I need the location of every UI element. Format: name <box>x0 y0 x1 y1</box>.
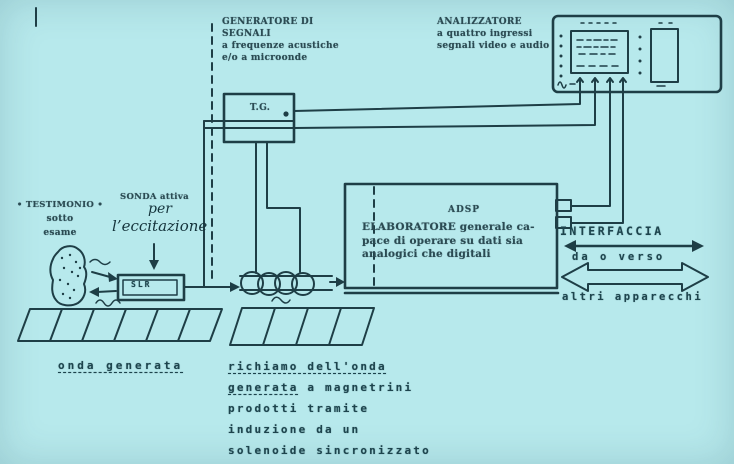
specimen-label: • TESTIMONIO • sotto esame <box>12 198 108 240</box>
interface-bottom-text: altri apparecchi <box>562 291 703 303</box>
probe-label-handwritten-2: l’eccitazione <box>112 217 207 235</box>
caption-right-line2-rest: a magnetrini <box>299 381 414 394</box>
specimen-label-line1: • TESTIMONIO • <box>12 198 108 212</box>
slr-box-label: SLR <box>131 280 151 289</box>
analyzer-label-line3: segnali video e audio <box>437 40 567 52</box>
arrowhead-into-adsp <box>336 277 345 287</box>
caption-right-line2: generata a magnetrini <box>228 377 431 398</box>
generator-label-line1: GENERATORE DI SEGNALI <box>222 16 362 40</box>
solenoid-coil-drawing <box>184 272 345 295</box>
caption-right-line2-underlined: generata <box>228 381 299 394</box>
generator-label-line2: a frequenze acustiche <box>222 40 362 52</box>
generator-feed-lines <box>204 24 212 287</box>
generator-label-line3: e/o a microonde <box>222 52 362 64</box>
tg-to-coil-wires <box>256 142 300 273</box>
analyzer-device-drawing <box>553 16 721 92</box>
caption-right-line3: prodotti tramite <box>228 398 431 419</box>
specimen-label-line3: esame <box>12 226 108 240</box>
caption-right-line1: richiamo dell'onda <box>228 356 431 377</box>
analyzer-label-line2: a quattro ingressi <box>437 28 567 40</box>
specimen-speckles <box>59 254 81 299</box>
probe-down-arrow <box>149 244 159 270</box>
film-strip-right <box>230 297 374 345</box>
tg-box-label: T.G. <box>240 102 280 114</box>
analyzer-to-adsp-wires <box>571 92 623 223</box>
specimen-blob-drawing <box>50 246 118 305</box>
interface-hollow-arrow <box>562 263 708 291</box>
adsp-body-text: ELABORATORE generale ca- pace di operare… <box>362 221 562 262</box>
caption-wave-generated: onda generata <box>58 359 183 372</box>
scanned-diagram-canvas: GENERATORE DI SEGNALI a frequenze acusti… <box>0 0 734 464</box>
caption-right-block: richiamo dell'onda generata a magnetrini… <box>228 356 431 461</box>
generator-label: GENERATORE DI SEGNALI a frequenze acusti… <box>222 16 362 64</box>
adsp-title: ADSP <box>448 204 480 216</box>
arrowhead-blob-to-slr <box>108 272 118 282</box>
arrowhead-into-coil <box>230 282 240 292</box>
film-strip-left <box>18 300 222 341</box>
tg-to-analyzer-wires <box>294 80 595 128</box>
interface-title: INTERFACCIA <box>560 224 664 238</box>
interface-middle-text: da o verso <box>572 251 665 263</box>
analyzer-input-connectors <box>577 78 626 92</box>
analyzer-screen-traces <box>577 40 618 66</box>
arrowhead-slr-to-blob <box>89 287 99 297</box>
analyzer-label-line1: ANALIZZATORE <box>437 16 567 28</box>
analyzer-knob-dots <box>558 23 672 88</box>
probe-label-handwritten-1: per <box>148 201 172 217</box>
analyzer-label: ANALIZZATORE a quattro ingressi segnali … <box>437 16 567 52</box>
caption-right-line4: induzione da un <box>228 419 431 440</box>
caption-right-line5: solenoide sincronizzato <box>228 440 431 461</box>
specimen-label-line2: sotto <box>12 212 108 226</box>
